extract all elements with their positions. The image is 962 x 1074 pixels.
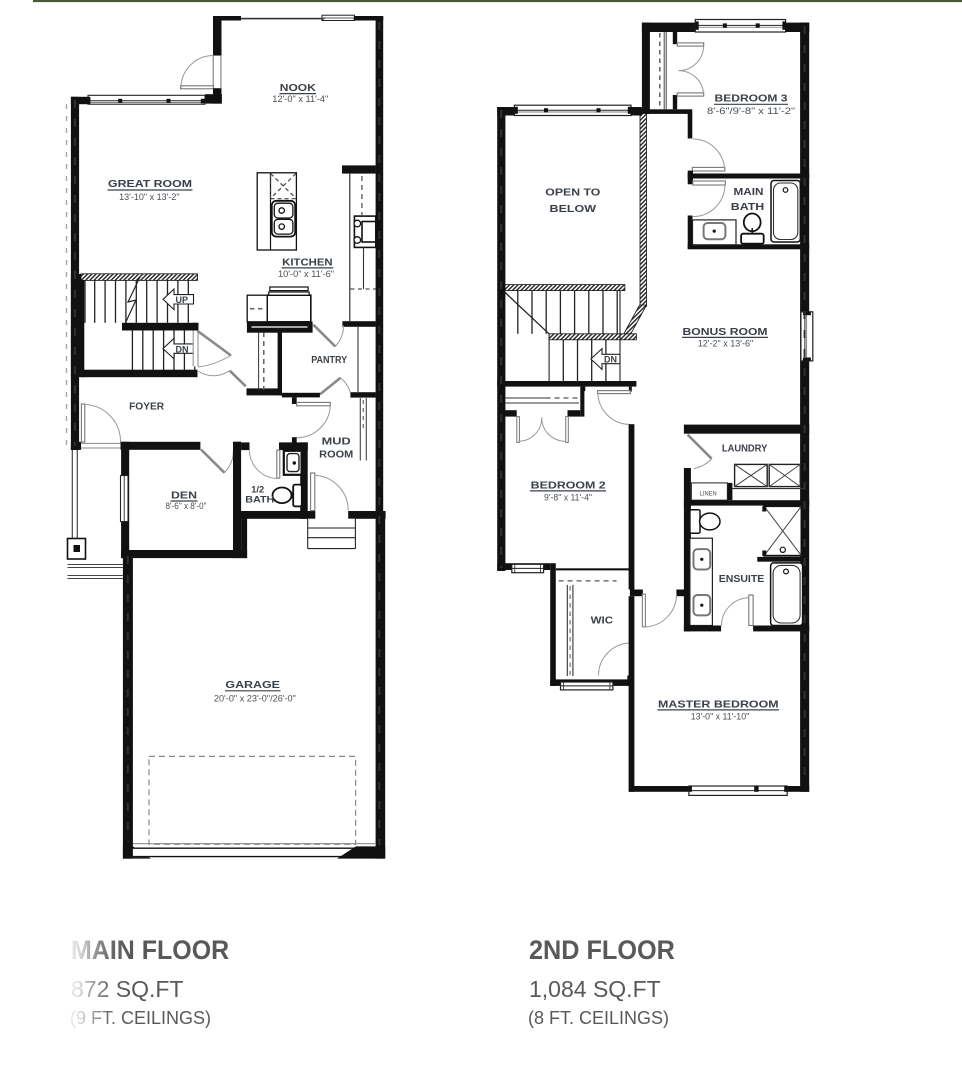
svg-text:GREAT ROOM: GREAT ROOM <box>108 178 192 190</box>
svg-text:OPEN TO: OPEN TO <box>545 186 600 198</box>
svg-text:ENSUITE: ENSUITE <box>719 573 765 585</box>
svg-text:BELOW: BELOW <box>550 203 597 215</box>
svg-text:BATH: BATH <box>245 495 274 506</box>
svg-text:20'-0" x 23'-0"/26'-0": 20'-0" x 23'-0"/26'-0" <box>214 693 296 703</box>
svg-text:WIC: WIC <box>591 614 614 626</box>
svg-text:1/2: 1/2 <box>251 484 264 495</box>
svg-text:BEDROOM 2: BEDROOM 2 <box>531 479 606 491</box>
svg-text:NOOK: NOOK <box>280 82 316 94</box>
svg-text:13'-0" x 11'-10": 13'-0" x 11'-10" <box>691 712 750 722</box>
svg-text:LAUNDRY: LAUNDRY <box>722 443 768 454</box>
svg-text:LINEN: LINEN <box>700 491 717 498</box>
svg-text:DN: DN <box>176 345 189 355</box>
svg-text:9'-8" x 11'-4": 9'-8" x 11'-4" <box>544 493 592 503</box>
svg-text:DEN: DEN <box>171 489 197 501</box>
svg-text:MASTER BEDROOM: MASTER BEDROOM <box>658 698 779 710</box>
svg-text:PANTRY: PANTRY <box>311 355 347 366</box>
svg-text:ROOM: ROOM <box>319 450 353 461</box>
svg-text:DN: DN <box>604 354 617 364</box>
svg-text:UP: UP <box>176 295 189 305</box>
svg-text:MUD: MUD <box>322 437 351 448</box>
svg-text:8'-6" x 8'-0": 8'-6" x 8'-0" <box>166 501 207 511</box>
svg-text:FOYER: FOYER <box>129 401 165 412</box>
svg-text:13'-10" x 13'-2": 13'-10" x 13'-2" <box>119 192 180 202</box>
svg-text:BEDROOM 3: BEDROOM 3 <box>715 93 788 105</box>
svg-text:10'-0" x 11'-6": 10'-0" x 11'-6" <box>278 269 334 279</box>
svg-text:12'-2" x 13'-6": 12'-2" x 13'-6" <box>698 338 754 348</box>
svg-text:12'-0" x 11'-4": 12'-0" x 11'-4" <box>272 94 328 104</box>
svg-text:KITCHEN: KITCHEN <box>282 256 333 268</box>
svg-text:BATH: BATH <box>731 201 765 213</box>
svg-text:BONUS ROOM: BONUS ROOM <box>683 326 768 338</box>
svg-text:8'-6"/9'-8" x 11'-2": 8'-6"/9'-8" x 11'-2" <box>707 106 795 116</box>
svg-text:MAIN: MAIN <box>734 186 764 198</box>
svg-text:GARAGE: GARAGE <box>225 679 280 691</box>
